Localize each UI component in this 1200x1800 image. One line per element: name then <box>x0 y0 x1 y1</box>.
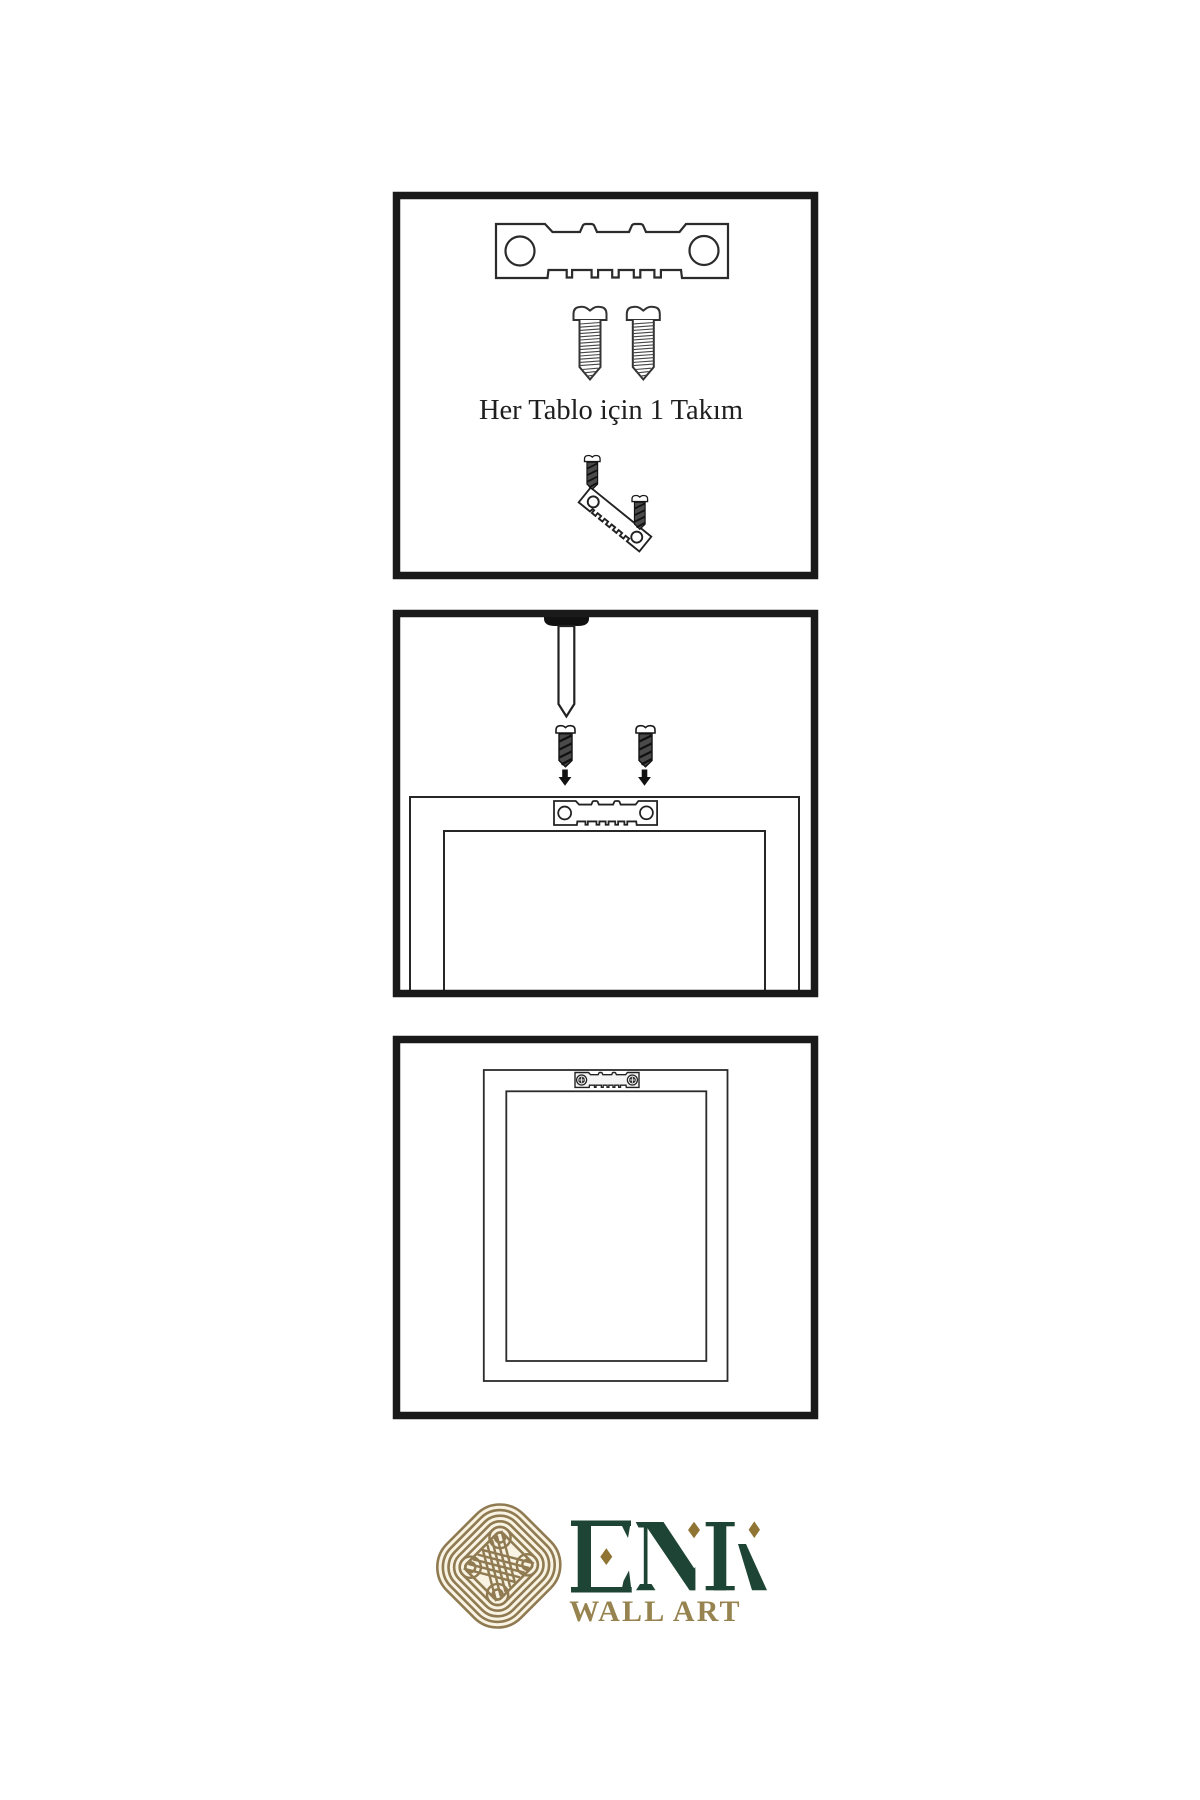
svg-text:Her Tablo için 1 Takım: Her Tablo için 1 Takım <box>479 395 743 426</box>
svg-text:WALL ART: WALL ART <box>569 1595 741 1628</box>
